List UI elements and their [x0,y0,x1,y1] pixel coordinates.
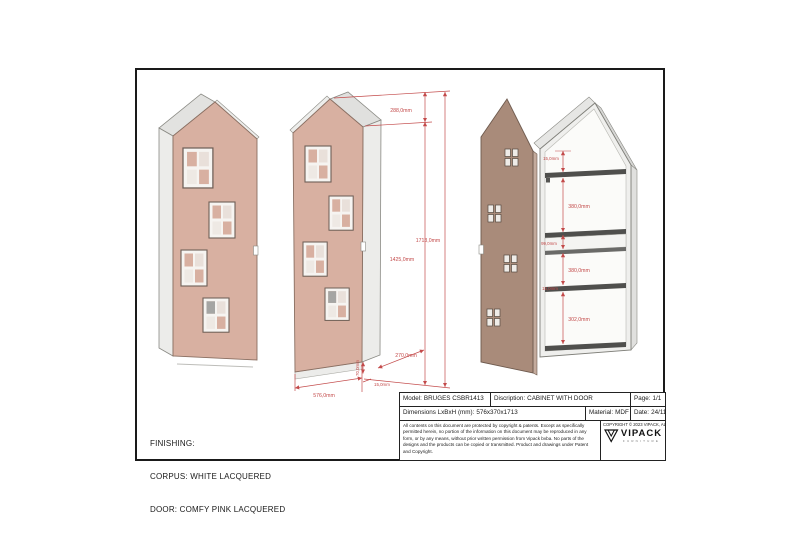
pink-door-front [293,99,363,372]
window [329,196,353,230]
title-block-row: Dimensions LxBxH (mm):576x370x1713 Mater… [400,407,665,421]
brand-name: VIPACK [621,429,662,438]
base-shadow [177,364,253,367]
dark-window-pane [207,301,216,313]
dimensions-cell: Dimensions LxBxH (mm):576x370x1713 [400,407,586,420]
door-handle [254,246,259,255]
door-panel [481,99,533,373]
model-value: BRUGES CSBR1413 [424,395,484,402]
brand-subtitle: FURNITURE [621,439,662,443]
vipack-logo: VIPACK FURNITURE [604,429,662,443]
dark-window-pane [328,291,336,303]
dimension-label: 302,0mm [568,317,590,323]
description-cell: Discription:CABINET WITH DOOR [491,393,631,406]
v-mark-icon [604,429,619,443]
drawing-sheet: 288,0mm 1713,0mm 1425,0mm 576,0mm 15,0mm… [0,0,800,533]
window [209,202,235,238]
dimension-label: 380,0mm [568,268,590,274]
dimension-label: 288,0mm [390,108,412,114]
title-block-row: All contents on this document are protec… [400,421,665,460]
window [305,146,331,182]
date-label: Date: [634,409,649,416]
material-cell: Material:MDF [586,407,631,420]
dimension-label: 576,0mm [313,393,335,399]
dimension-label: 1713,0mm [416,238,441,244]
side-panel [362,120,381,362]
dimension-label: 380,0mm [568,204,590,210]
dimensions-value: 576x370x1713 [476,409,517,416]
dimension-label: 270,0mm [395,353,417,359]
dimensioned-cabinet-view: 288,0mm 1713,0mm 1425,0mm 576,0mm 15,0mm… [278,76,463,401]
dimension-label: 70,0mm [355,360,360,376]
door-handle [361,242,366,251]
copyright-text: COPYRIGHT © 2023 VIPACK, ALL RIGHTS RESE… [603,422,663,427]
finishing-notes: FINISHING: CORPUS: WHITE LACQUERED DOOR:… [150,416,285,533]
dimensions-label: Dimensions LxBxH (mm): [403,409,474,416]
model-label: Model: [403,395,422,402]
finishing-corpus: CORPUS: WHITE LACQUERED [150,471,285,482]
hinge-bracket [546,178,550,183]
side-panel [631,165,637,350]
copyright-cell: COPYRIGHT © 2023 VIPACK, ALL RIGHTS RESE… [601,421,665,460]
dimension-label: 15,0mm [542,286,558,291]
material-label: Material: [589,409,613,416]
dimension-label: 15,0mm [543,156,559,161]
door-edge [533,151,537,375]
disclaimer-cell: All contents on this document are protec… [400,421,601,460]
date-value: 24/11/2023 [651,409,665,416]
open-door [479,99,537,375]
model-cell: Model:BRUGES CSBR1413 [400,393,491,406]
open-cabinet-view: 15,0mm 380,0mm 99,0mm 380,0mm 15,0mm 302… [475,85,640,390]
title-block-row: Model:BRUGES CSBR1413 Discription:CABINE… [400,393,665,407]
finishing-title: FINISHING: [150,438,285,449]
cabinet-body [290,92,381,379]
window [181,250,207,286]
side-panel [159,128,173,356]
dimension-label: 99,0mm [541,241,557,246]
dimension-label: 15,0mm [374,382,390,387]
cabinet-body [159,94,259,367]
date-cell: Date:24/11/2023 [631,407,665,420]
material-value: MDF [615,409,629,416]
description-value: CABINET WITH DOOR [527,395,593,402]
window [303,242,327,276]
window [183,148,213,188]
page-value: 1/1 [652,395,661,402]
closed-cabinet-view [145,88,270,388]
door-handle [479,245,484,254]
title-block: Model:BRUGES CSBR1413 Discription:CABINE… [399,392,666,461]
page-label: Page: [634,395,650,402]
page-cell: Page:1/1 [631,393,665,406]
finishing-door: DOOR: COMFY PINK LACQUERED [150,504,285,515]
description-label: Discription: [494,395,525,402]
dimension-label: 1425,0mm [390,257,415,263]
